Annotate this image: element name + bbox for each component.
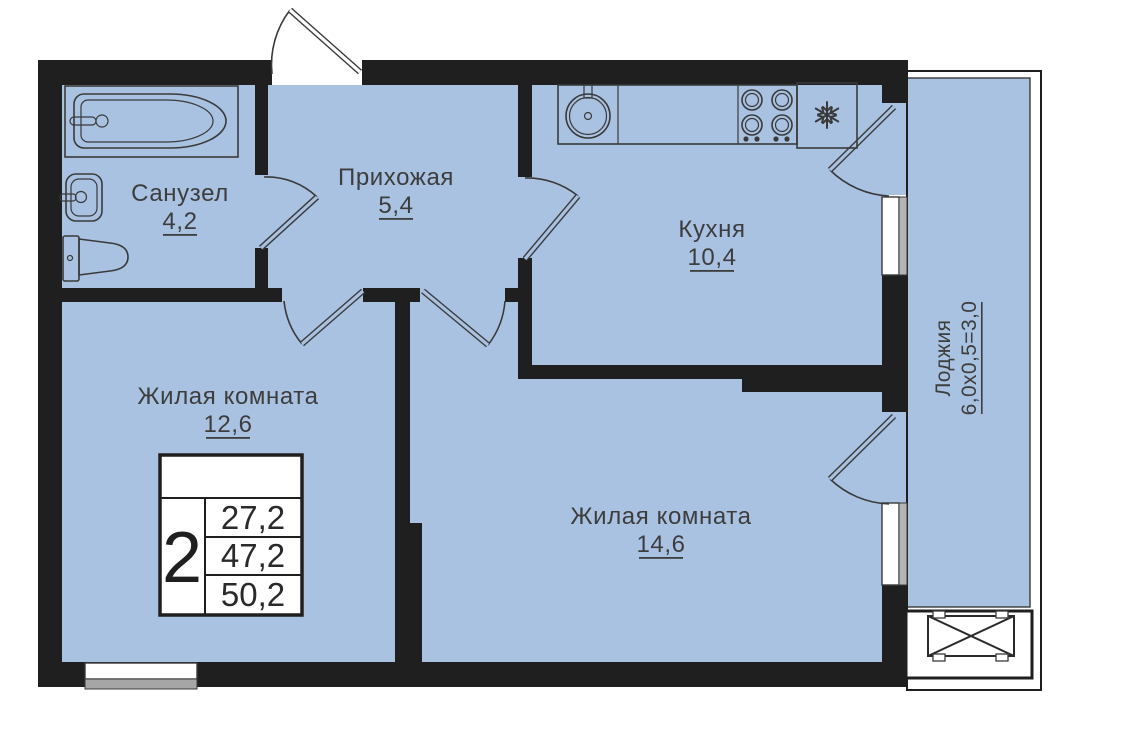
room-name: Прихожая: [338, 164, 454, 191]
room-area: 14,6: [636, 531, 685, 558]
window-living-large-loggia: [882, 503, 907, 585]
stamp-value-2: 47,2: [221, 537, 285, 574]
room-label-kitchen: Кухня 10,4: [678, 216, 745, 272]
stamp-value-3: 50,2: [221, 576, 285, 613]
room-area: 4,2: [162, 208, 197, 235]
room-name: Жилая комната: [137, 383, 318, 410]
area-stamp: 2 27,2 47,2 50,2: [160, 455, 302, 615]
room-area: 5,4: [378, 192, 413, 219]
stamp-rooms-count: 2: [162, 518, 202, 598]
entrance-door: [272, 10, 360, 74]
window-living-small: [85, 663, 197, 689]
ac-basket-icon: [906, 611, 1032, 678]
room-name: Жилая комната: [570, 503, 751, 530]
room-area: 12,6: [203, 411, 252, 438]
room-area: 6,0x0,5=3,0: [958, 301, 981, 416]
stamp-value-1: 27,2: [221, 499, 285, 536]
floor-plan: Санузел 4,2 Прихожая 5,4 Кухня 10,4 Жила…: [0, 0, 1147, 736]
room-name: Кухня: [678, 216, 745, 243]
window-kitchen-loggia: [882, 197, 907, 275]
room-name: Лоджия: [932, 320, 955, 397]
room-area: 10,4: [687, 244, 736, 271]
room-name: Санузел: [131, 180, 229, 207]
